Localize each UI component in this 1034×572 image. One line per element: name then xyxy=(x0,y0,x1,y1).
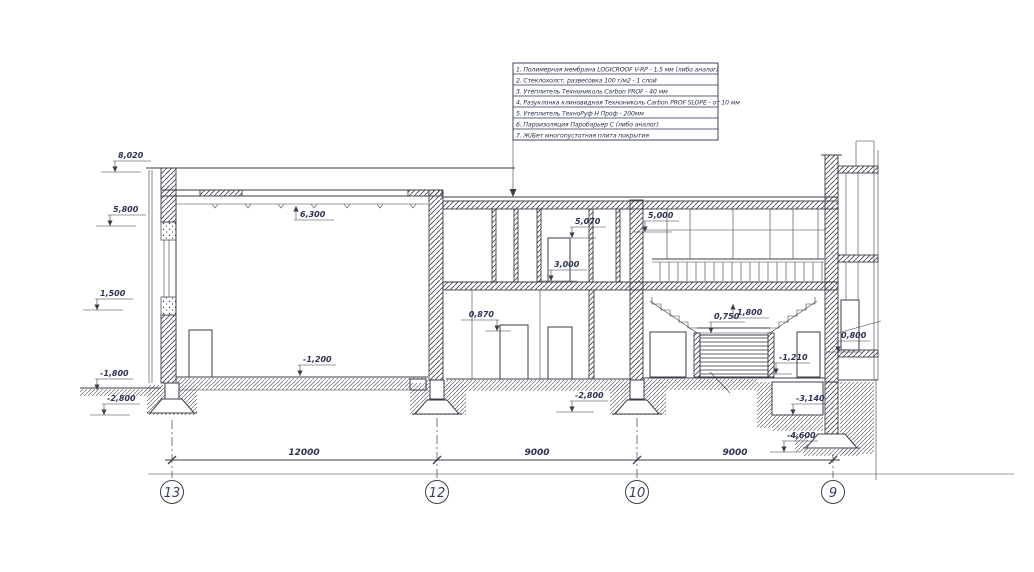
elevation-label: -4,600 xyxy=(787,431,816,440)
legend-item-1: 1. Полимерная мембрана LOGICROOF V-RP - … xyxy=(516,65,719,73)
section-drawing-svg: 1. Полимерная мембрана LOGICROOF V-RP - … xyxy=(0,0,1034,572)
axis-label: 12 xyxy=(429,486,446,501)
axis-bubbles: 13 12 10 9 xyxy=(161,481,845,504)
hall-door xyxy=(189,330,212,377)
stair-door-left xyxy=(650,332,686,377)
elevation-label: -1,210 xyxy=(779,353,808,362)
ground-floor-door xyxy=(500,325,528,379)
main-entrance-stair xyxy=(700,335,768,377)
elevation-label: 1,800 xyxy=(737,308,763,317)
axis-label: 10 xyxy=(629,486,646,501)
right-stair-flight xyxy=(770,297,815,328)
elevation-label: 5,070 xyxy=(575,217,601,226)
axis-10-wall xyxy=(630,200,643,380)
elevation-mark-minus-2800-mid: -2,800 xyxy=(556,391,608,412)
elevation-label: 8,020 xyxy=(118,151,144,160)
architectural-section-drawing: 1. Полимерная мембрана LOGICROOF V-RP - … xyxy=(0,0,1034,572)
big-hall xyxy=(146,168,515,380)
legend-item-2: 2. Стеклохолст, развесовка 100 г/м2 - 1 … xyxy=(516,77,657,84)
ground-floor-door-2 xyxy=(548,327,572,379)
elevation-label: -1,800 xyxy=(100,369,129,378)
dimension-span-12-10: 9000 xyxy=(524,448,549,458)
elevation-mark-minus-1200: -1,200 xyxy=(297,355,336,376)
elevation-label: -2,800 xyxy=(575,391,604,400)
legend-leader-arrow-icon xyxy=(510,189,517,197)
elevation-label: 5,800 xyxy=(113,205,139,214)
annex-door xyxy=(841,300,859,350)
elevation-label: 5,000 xyxy=(648,211,674,220)
legend-item-7: 7. Ж/Бет многопустотная плита покрытия xyxy=(516,132,649,139)
left-facade-wall xyxy=(149,168,176,383)
elevation-label: 3,000 xyxy=(554,260,580,269)
axis-9-wall xyxy=(825,155,838,382)
axis-label: 13 xyxy=(164,486,181,501)
legend-item-6: 6. Пароизоляция Паробарьер С (либо анало… xyxy=(516,120,659,128)
elevation-mark-5800: 5,800 xyxy=(96,205,146,226)
elevation-mark-1800-stair: 1,800 xyxy=(730,304,769,318)
elevation-label: -2,800 xyxy=(107,394,136,403)
legend-item-5: 5. Утеплитель ТехноРуф Н Проф - 200мм xyxy=(516,110,644,117)
legend-item-4: 4. Разуклонка клиновидная Технониколь Ca… xyxy=(516,99,740,106)
roof-assembly-legend: 1. Полимерная мембрана LOGICROOF V-RP - … xyxy=(510,63,741,197)
dimension-system: 12000 9000 9000 xyxy=(148,418,1014,478)
axis-12-wall xyxy=(429,190,443,380)
elevation-label: 0,800 xyxy=(841,331,867,340)
elevation-label: -3,140 xyxy=(796,394,825,403)
elevation-mark-minus-4600: -4,600 xyxy=(770,431,818,452)
elevation-mark-1500: 1,500 xyxy=(83,289,133,310)
elevation-label: 0,870 xyxy=(469,310,495,319)
stairwell xyxy=(643,155,842,393)
axis-label: 9 xyxy=(829,486,837,501)
elevation-mark-minus-2800-left: -2,800 xyxy=(90,394,140,415)
legend-item-3: 3. Утеплитель Технониколь Carbon PROF - … xyxy=(516,88,668,95)
elevation-label: 1,500 xyxy=(100,289,126,298)
elevation-mark-8020: 8,020 xyxy=(101,151,151,172)
elevation-label: 6,300 xyxy=(300,210,326,219)
dimension-span-10-9: 9000 xyxy=(722,448,747,458)
elevation-label: 0,750 xyxy=(714,312,740,321)
left-stair-flight xyxy=(652,297,697,328)
elevation-mark-5070: 5,070 xyxy=(560,217,606,238)
elevation-mark-minus-1800: -1,800 xyxy=(94,369,133,390)
elevation-label: -1,200 xyxy=(303,355,332,364)
dimension-span-13-12: 12000 xyxy=(288,448,319,458)
